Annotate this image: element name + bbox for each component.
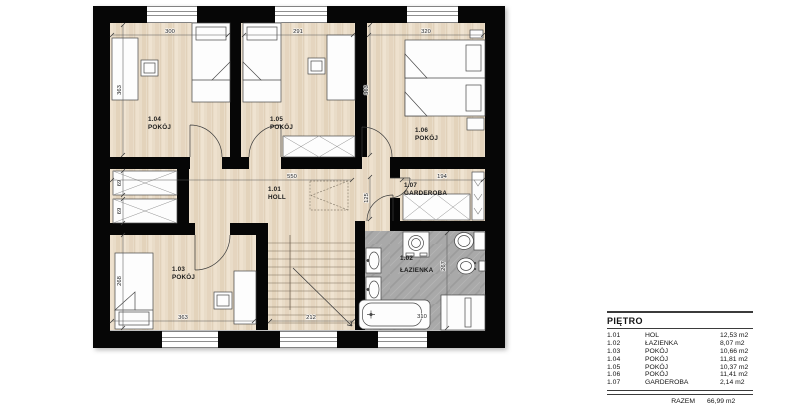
room-name: POKÓJ [270,122,293,131]
floor-plan: 300 291 320 363 69 69 268 363 125 267 55… [90,4,508,350]
desk [327,35,355,100]
legend-table: PIĘTRO 1.01 HOL 12,53 m2 1.02 ŁAZIENKA 8… [607,311,753,406]
page: 300 291 320 363 69 69 268 363 125 267 55… [0,0,800,414]
legend-room-area: 10,37 m2 [720,364,753,372]
chair-seat [311,61,322,71]
chair-seat [217,295,229,306]
legend-row: 1.06 POKÓJ 11,41 m2 [607,371,753,379]
dim-label: 194 [437,174,447,180]
room-name: POKÓJ [415,133,438,142]
legend-room-area: 11,81 m2 [720,356,753,364]
dim-label: 125 [364,193,370,203]
shower [441,295,485,330]
legend-room-name: HOL [645,332,720,340]
window [147,7,197,23]
dim-label: 300 [165,29,175,35]
legend-room-area: 2,14 m2 [720,379,753,387]
legend-room-name: POKÓJ [645,356,720,364]
room-id: 1.05 [270,116,283,123]
legend-room-name: ŁAZIENKA [645,340,720,348]
window [162,332,218,348]
dim-label: 69 [117,208,123,214]
room-name: POKÓJ [172,272,195,281]
legend-room-area: 11,41 m2 [720,371,753,379]
dim-label: 363 [117,85,123,95]
room-id: 1.06 [415,127,428,134]
legend-row: 1.03 POKÓJ 10,66 m2 [607,348,753,356]
wardrobe [283,136,355,157]
pillow [466,45,481,71]
legend-row: 1.05 POKÓJ 10,37 m2 [607,364,753,372]
desk [112,38,138,100]
room-name: GARDEROBA [404,190,447,197]
pillow [119,312,149,325]
window [280,332,337,348]
legend-room-id: 1.01 [607,332,645,340]
legend-row: 1.01 HOL 12,53 m2 [607,332,753,340]
dim-label: 212 [306,315,316,321]
double-bed [405,40,485,116]
legend-room-area: 8,07 m2 [720,340,753,348]
wall-left [93,6,110,348]
dim-label: 363 [364,85,370,95]
legend-total-rule [607,390,753,395]
single-bed [115,253,153,329]
room-id: 1.07 [404,182,417,189]
room-id: 1.03 [172,266,185,273]
chair-seat [144,63,155,73]
dim-label: 320 [421,29,431,35]
sink [366,248,381,273]
dim-label: 363 [178,315,188,321]
legend-room-name: POKÓJ [645,348,720,356]
window [275,7,327,23]
legend-room-id: 1.02 [607,340,645,348]
desk [234,271,256,324]
legend-room-id: 1.05 [607,364,645,372]
dim-label: 268 [117,276,123,286]
window [407,7,458,23]
legend-total-area: 66,99 m2 [707,398,753,406]
pillow [247,27,277,40]
toilet [455,232,486,250]
dim-label: 291 [293,29,303,35]
legend-room-area: 12,53 m2 [720,332,753,340]
legend-total-label: RAZEM [671,398,695,406]
legend-room-id: 1.03 [607,348,645,356]
washing-machine [403,232,429,257]
room-name: ŁAZIENKA [400,267,434,274]
dim-label: 69 [117,180,123,186]
room-id: 1.02 [400,255,413,262]
legend-title-rule [607,328,753,329]
room-name: HOLL [268,194,286,201]
window [378,332,427,348]
legend-room-name: GARDEROBA [645,379,720,387]
legend-row: 1.07 GARDEROBA 2,14 m2 [607,379,753,387]
legend-row: 1.04 POKÓJ 11,81 m2 [607,356,753,364]
pillow [466,85,481,111]
legend-total-row: RAZEM 66,99 m2 [607,398,753,406]
room-id: 1.01 [268,186,281,193]
room-id: 1.04 [148,116,161,123]
nightstand [467,118,484,130]
dim-label: 550 [287,174,297,180]
room-106-furniture [405,30,485,130]
legend-room-id: 1.07 [607,379,645,387]
dim-label: 267 [441,261,447,271]
legend-title: PIĘTRO [607,313,753,328]
wall-right [485,6,505,348]
legend-row: 1.02 ŁAZIENKA 8,07 m2 [607,340,753,348]
room-name: POKÓJ [148,122,171,131]
legend-room-area: 10,66 m2 [720,348,753,356]
pillow [196,27,226,40]
legend-room-id: 1.04 [607,356,645,364]
legend-room-name: POKÓJ [645,371,720,379]
hanging-rail [472,172,484,220]
wardrobe [403,194,470,220]
legend-room-id: 1.06 [607,371,645,379]
dim-label: 310 [417,314,427,320]
sink [366,277,381,302]
